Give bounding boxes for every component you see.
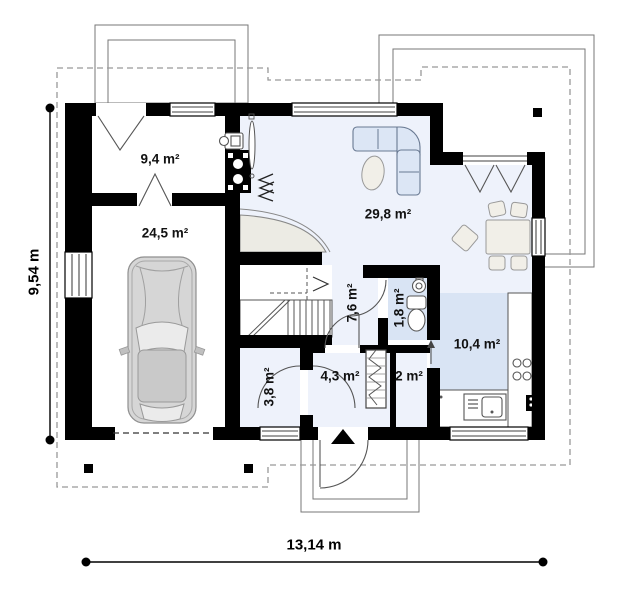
- car: [119, 257, 205, 423]
- floor-plan-drawing: [0, 0, 640, 610]
- dining-table: [486, 220, 530, 254]
- room-label-kitchen: 10,4 m²: [454, 337, 501, 352]
- room-label-storage: 3,8 m²: [262, 367, 277, 406]
- room-label-garage: 24,5 m²: [142, 226, 189, 241]
- window-dining-right: [532, 218, 545, 256]
- window-garage-left: [65, 252, 92, 298]
- wardrobe-closet: [366, 350, 386, 408]
- window-storage-bottom: [260, 427, 300, 440]
- boiler: [220, 133, 244, 149]
- canopy-outline-top-left: [95, 25, 248, 103]
- chair: [488, 200, 507, 217]
- dimension-line-horizontal: [82, 558, 548, 567]
- door-utility-entry: [98, 116, 144, 150]
- porch-outline-bottom: [301, 440, 419, 512]
- kitchen-sink: [464, 394, 506, 420]
- room-label-hall: 7,6 m²: [345, 283, 360, 322]
- window-utility-top: [170, 103, 215, 116]
- dimension-line-vertical: [46, 104, 55, 445]
- room-label-wc: 1,8 m²: [392, 288, 407, 327]
- window-kitchen-bottom: [450, 427, 528, 440]
- room-label-entry: 4,3 m²: [320, 369, 359, 384]
- room-label-living: 29,8 m²: [365, 207, 412, 222]
- room-label-pantry: 2 m²: [395, 369, 423, 384]
- door-front-entrance: [320, 440, 368, 488]
- dimension-width: 13,14 m: [286, 537, 341, 554]
- window-living-top: [292, 103, 397, 116]
- chair: [510, 202, 528, 218]
- chair: [511, 256, 527, 270]
- chair: [489, 256, 505, 270]
- floor-plan: 9,4 m² 24,5 m² 29,8 m² 7,6 m² 1,8 m² 10,…: [0, 0, 640, 610]
- room-label-utility: 9,4 m²: [140, 152, 179, 167]
- dimension-height: 9,54 m: [26, 249, 43, 296]
